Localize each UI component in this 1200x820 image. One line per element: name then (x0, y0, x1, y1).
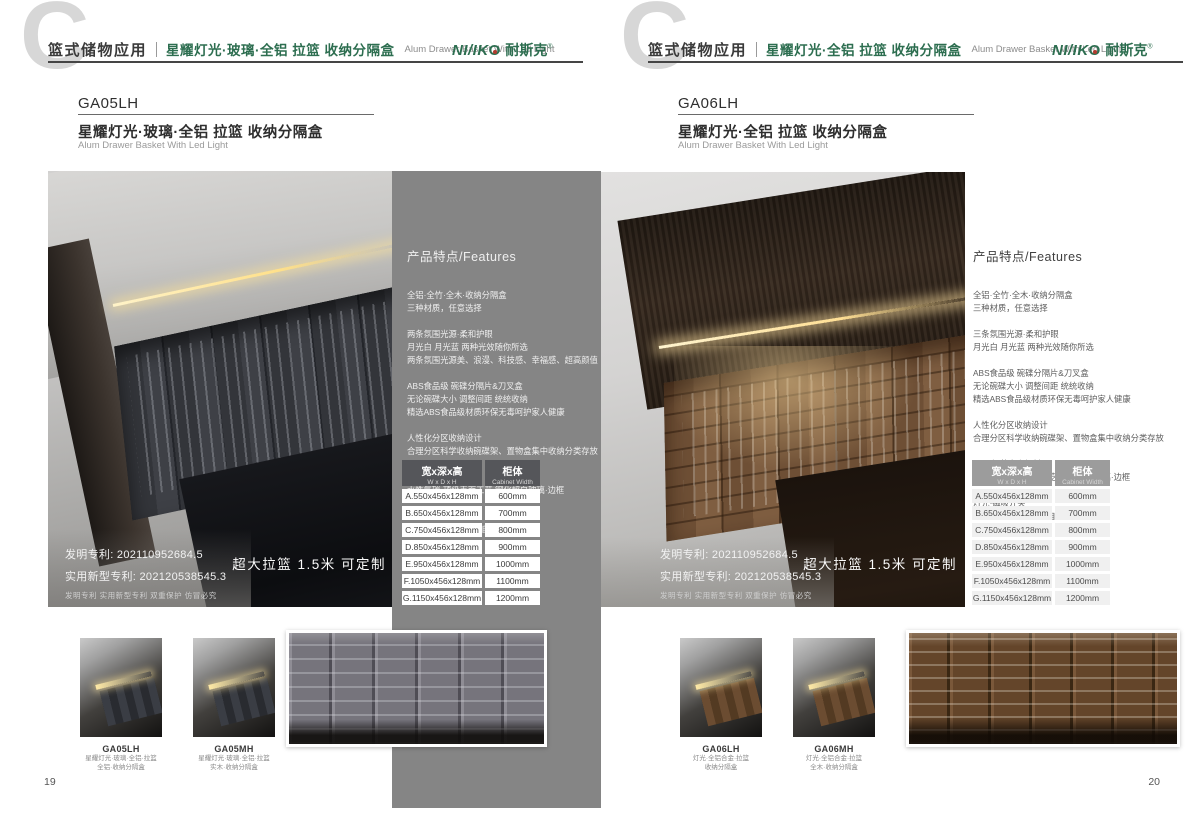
size-column-header: 宽x深x高 W x D x H (402, 460, 482, 486)
cabinet-cell: 800mm (485, 523, 540, 537)
size-cell: E.950x456x128mm (402, 557, 482, 571)
header-separator (756, 42, 757, 57)
logo-o-mark: O (1089, 42, 1101, 59)
variant-thumbnails: GA06LH 灯光·全铝合金·拉篮 收纳分隔盒 GA06MH 灯光·全铝合金·拉… (680, 638, 906, 772)
product-name-cn: 星耀灯光·全铝 拉篮 收纳分隔盒 (678, 121, 887, 142)
variant-photo (680, 638, 762, 737)
spec-row: A.550x456x128mm 600mm (972, 489, 1110, 503)
header-separator (156, 42, 157, 57)
logo-latin: NI/IK (1052, 42, 1089, 59)
variant-desc-line2: 实木·收纳分隔盒 (193, 763, 275, 772)
product-name-en: Alum Drawer Basket With Led Light (678, 140, 828, 151)
page-number: 19 (44, 776, 56, 788)
cabinet-column-header: 柜体 Cabinet Width (485, 460, 540, 486)
variant-desc-line1: 灯光·全铝合金·拉篮 (793, 754, 875, 763)
patent-notice: 发明专利 实用新型专利 双重保护 仿冒必究 (660, 590, 821, 601)
size-cell: F.1050x456x128mm (972, 574, 1052, 588)
variant-thumb: GA05LH 星耀灯光·玻璃·全铝·拉篮 全铝·收纳分隔盒 (80, 638, 162, 772)
header-rule (48, 61, 583, 63)
page-header: 篮式储物应用 星耀灯光·全铝 拉篮 收纳分隔盒 Alum Drawer Bask… (648, 38, 1121, 60)
variant-desc-line1: 星耀灯光·玻璃·全铝·拉篮 (193, 754, 275, 763)
spec-table-header: 宽x深x高 W x D x H 柜体 Cabinet Width (972, 460, 1110, 486)
cabinet-cell: 1000mm (485, 557, 540, 571)
spec-table-body: A.550x456x128mm 600mm B.650x456x128mm 70… (972, 489, 1110, 605)
custom-size-badge: 超大拉篮 1.5米 可定制 (232, 553, 386, 573)
size-cell: C.750x456x128mm (972, 523, 1052, 537)
size-cell: F.1050x456x128mm (402, 574, 482, 588)
size-cell: G.1150x456x128mm (972, 591, 1052, 605)
spec-row: B.650x456x128mm 700mm (972, 506, 1110, 520)
variant-thumb: GA05MH 星耀灯光·玻璃·全铝·拉篮 实木·收纳分隔盒 (193, 638, 275, 772)
led-glow (674, 346, 929, 477)
spec-row: F.1050x456x128mm 1100mm (402, 574, 540, 588)
cabinet-cell: 900mm (485, 540, 540, 554)
cabinet-cell: 1200mm (1055, 591, 1110, 605)
registered-mark: ® (1147, 44, 1152, 51)
variant-photo (793, 638, 875, 737)
variant-desc-line2: 收纳分隔盒 (680, 763, 762, 772)
size-cell: G.1150x456x128mm (402, 591, 482, 605)
variant-photo (193, 638, 275, 737)
product-photo: 发明专利: 202110952684.5 实用新型专利: 20212053854… (601, 172, 965, 607)
cabinet-cell: 1100mm (1055, 574, 1110, 588)
feature-group: 人性化分区收纳设计 合理分区科学收纳碗碟架、置物盒集中收纳分类存放 (407, 432, 599, 458)
product-code-rule (678, 114, 974, 115)
variant-desc-line1: 星耀灯光·玻璃·全铝·拉篮 (80, 754, 162, 763)
feature-group: 三条氛围光源·柔和护眼 月光白 月光蓝 两种光效随你所选 (973, 328, 1185, 354)
spec-row: E.950x456x128mm 1000mm (402, 557, 540, 571)
custom-size-badge: 超大拉篮 1.5米 可定制 (803, 553, 957, 573)
variant-thumb: GA06MH 灯光·全铝合金·拉篮 全木·收纳分隔盒 (793, 638, 875, 772)
spec-row: G.1150x456x128mm 1200mm (972, 591, 1110, 605)
variant-desc-line1: 灯光·全铝合金·拉篮 (680, 754, 762, 763)
size-cell: B.650x456x128mm (972, 506, 1052, 520)
cabinet-cell: 700mm (1055, 506, 1110, 520)
variant-photo (80, 638, 162, 737)
spec-table-header: 宽x深x高 W x D x H 柜体 Cabinet Width (402, 460, 540, 486)
brand-logo: NI/IKO耐斯克® (452, 40, 553, 60)
product-code: GA05LH (78, 95, 139, 112)
size-cell: C.750x456x128mm (402, 523, 482, 537)
features-heading: 产品特点/Features (407, 246, 599, 265)
spec-row: B.650x456x128mm 700mm (402, 506, 540, 520)
patent-info: 发明专利: 202110952684.5 实用新型专利: 20212053854… (65, 546, 226, 601)
category-title: 篮式储物应用 (648, 39, 747, 60)
cabinet-cell: 600mm (485, 489, 540, 503)
invention-patent: 发明专利: 202110952684.5 (660, 546, 821, 562)
variant-code: GA05LH (80, 744, 162, 754)
spec-table: 宽x深x高 W x D x H 柜体 Cabinet Width A.550x4… (402, 460, 540, 608)
logo-o-mark: O (489, 42, 501, 59)
size-cell: A.550x456x128mm (972, 489, 1052, 503)
variant-thumb: GA06LH 灯光·全铝合金·拉篮 收纳分隔盒 (680, 638, 762, 772)
features-heading: 产品特点/Features (973, 246, 1185, 265)
spec-row: F.1050x456x128mm 1100mm (972, 574, 1110, 588)
logo-latin: NI/IK (452, 42, 489, 59)
spec-row: C.750x456x128mm 800mm (402, 523, 540, 537)
spec-row: D.850x456x128mm 900mm (972, 540, 1110, 554)
feature-group: 全铝·全竹·全木·收纳分隔盒 三种材质，任意选择 (973, 289, 1185, 315)
series-title-cn: 星耀灯光·玻璃·全铝 拉篮 收纳分隔盒 (166, 39, 395, 59)
catalog-page-right: C 篮式储物应用 星耀灯光·全铝 拉篮 收纳分隔盒 Alum Drawer Ba… (600, 0, 1200, 820)
page-number: 20 (1148, 776, 1160, 788)
product-name-en: Alum Drawer Basket With Led Light (78, 140, 228, 151)
feature-group: ABS食品级 碗碟分隔片&刀叉盒 无论碗碟大小 调整间距 统统收纳 精选ABS食… (407, 380, 599, 419)
detail-photo-frame (906, 630, 1180, 747)
spec-row: A.550x456x128mm 600mm (402, 489, 540, 503)
product-code-rule (78, 114, 374, 115)
variant-desc-line2: 全木·收纳分隔盒 (793, 763, 875, 772)
cabinet-cell: 700mm (485, 506, 540, 520)
registered-mark: ® (547, 44, 552, 51)
patent-notice: 发明专利 实用新型专利 双重保护 仿冒必究 (65, 590, 226, 601)
size-cell: D.850x456x128mm (972, 540, 1052, 554)
spec-table-body: A.550x456x128mm 600mm B.650x456x128mm 70… (402, 489, 540, 605)
utility-patent: 实用新型专利: 202120538545.3 (660, 568, 821, 584)
cabinet-column-header: 柜体 Cabinet Width (1055, 460, 1110, 486)
logo-cn: 耐斯克 (1105, 42, 1147, 58)
feature-group: ABS食品级 碗碟分隔片&刀叉盒 无论碗碟大小 调整间距 统统收纳 精选ABS食… (973, 367, 1185, 406)
cabinet-cell: 1200mm (485, 591, 540, 605)
spec-row: E.950x456x128mm 1000mm (972, 557, 1110, 571)
size-cell: A.550x456x128mm (402, 489, 482, 503)
utility-patent: 实用新型专利: 202120538545.3 (65, 568, 226, 584)
product-photo: 发明专利: 202110952684.5 实用新型专利: 20212053854… (48, 171, 392, 607)
variant-thumbnails: GA05LH 星耀灯光·玻璃·全铝·拉篮 全铝·收纳分隔盒 GA05MH 星耀灯… (80, 638, 306, 772)
spec-row: G.1150x456x128mm 1200mm (402, 591, 540, 605)
cutlery-tray-detail-photo (289, 633, 544, 744)
cabinet-cell: 800mm (1055, 523, 1110, 537)
cabinet-cell: 900mm (1055, 540, 1110, 554)
product-name-cn: 星耀灯光·玻璃·全铝 拉篮 收纳分隔盒 (78, 121, 323, 142)
variant-desc-line2: 全铝·收纳分隔盒 (80, 763, 162, 772)
spec-row: C.750x456x128mm 800mm (972, 523, 1110, 537)
cabinet-cell: 600mm (1055, 489, 1110, 503)
variant-code: GA06LH (680, 744, 762, 754)
size-cell: D.850x456x128mm (402, 540, 482, 554)
invention-patent: 发明专利: 202110952684.5 (65, 546, 226, 562)
size-cell: B.650x456x128mm (402, 506, 482, 520)
spec-row: D.850x456x128mm 900mm (402, 540, 540, 554)
feature-group: 两条氛围光源·柔和护眼 月光白 月光蓝 两种光效随你所选 两条氛围光源美、浪漫、… (407, 328, 599, 367)
spec-table: 宽x深x高 W x D x H 柜体 Cabinet Width A.550x4… (972, 460, 1110, 608)
logo-cn: 耐斯克 (505, 42, 547, 58)
size-column-header: 宽x深x高 W x D x H (972, 460, 1052, 486)
patent-info: 发明专利: 202110952684.5 实用新型专利: 20212053854… (660, 546, 821, 601)
cutlery-tray-detail-photo (909, 633, 1177, 744)
cabinet-cell: 1000mm (1055, 557, 1110, 571)
header-rule (648, 61, 1183, 63)
product-code: GA06LH (678, 95, 739, 112)
category-title: 篮式储物应用 (48, 39, 147, 60)
cabinet-cell: 1100mm (485, 574, 540, 588)
series-title-cn: 星耀灯光·全铝 拉篮 收纳分隔盒 (766, 39, 962, 59)
feature-group: 全铝·全竹·全木·收纳分隔盒 三种材质，任意选择 (407, 289, 599, 315)
catalog-page-left: C 篮式储物应用 星耀灯光·玻璃·全铝 拉篮 收纳分隔盒 Alum Drawer… (0, 0, 600, 820)
detail-photo-frame (286, 630, 547, 747)
size-cell: E.950x456x128mm (972, 557, 1052, 571)
variant-code: GA05MH (193, 744, 275, 754)
brand-logo: NI/IKO耐斯克® (1052, 40, 1153, 60)
feature-group: 人性化分区收纳设计 合理分区科学收纳碗碟架、置物盒集中收纳分类存放 (973, 419, 1185, 445)
variant-code: GA06MH (793, 744, 875, 754)
